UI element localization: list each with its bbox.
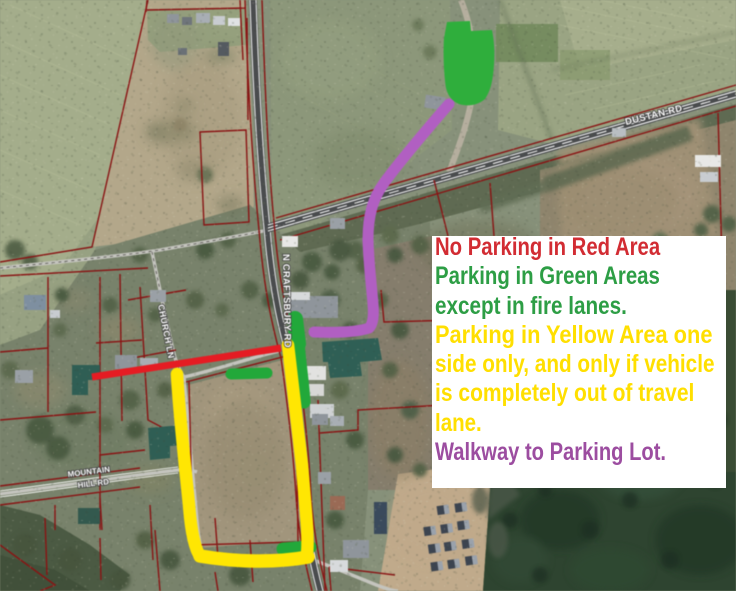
svg-text:N CRAFTSBURY RD: N CRAFTSBURY RD [280, 254, 293, 348]
